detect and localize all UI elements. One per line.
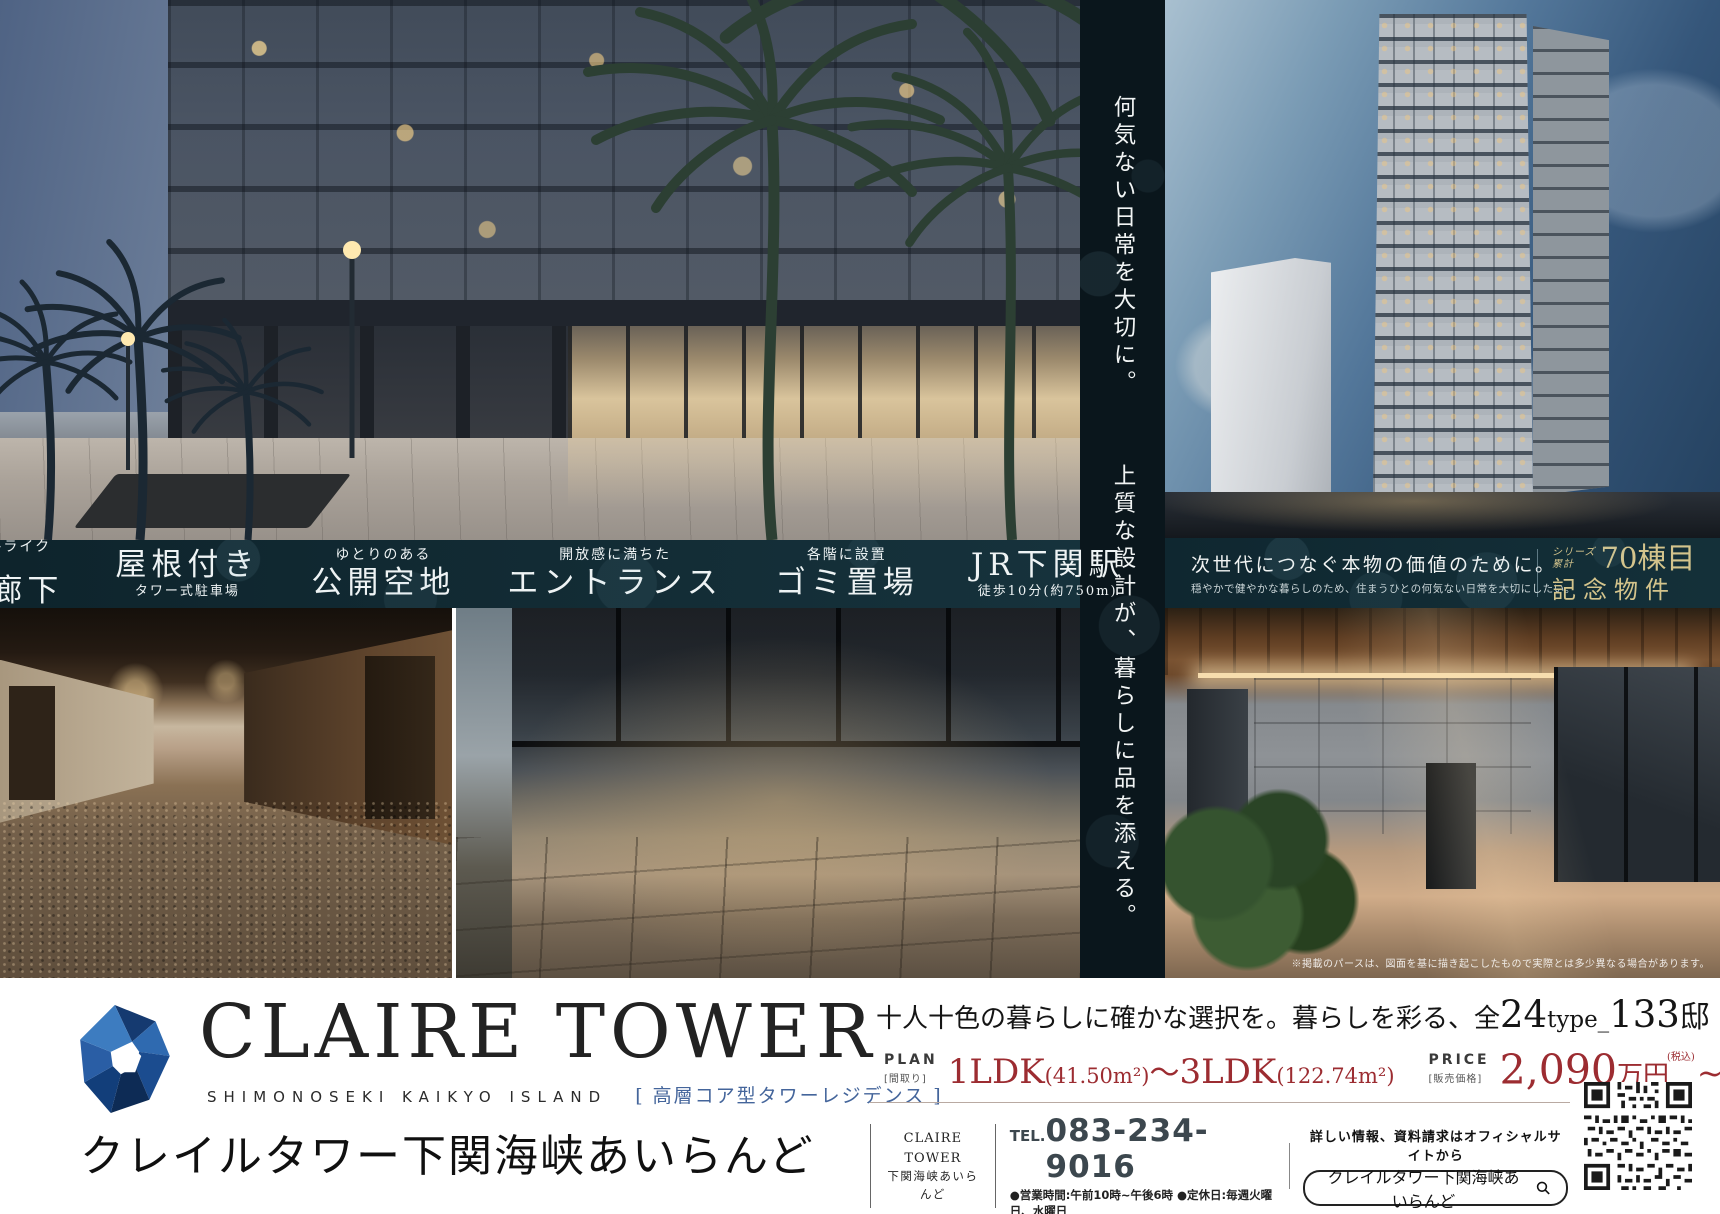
feature-main: JR下関駅 [971, 548, 1125, 582]
series-badge: シリーズ 累計 70棟目 記念物件 [1552, 544, 1695, 602]
feature-main: 公開空地 [311, 566, 455, 600]
caption-divider [1537, 549, 1538, 597]
feature-garbage-room: 各階に設置 ゴミ置場 [749, 548, 945, 600]
series-subtitle: 記念物件 [1552, 578, 1695, 602]
series-line1: シリーズ [1552, 548, 1596, 558]
palm-trees-silhouette [0, 0, 1080, 540]
corridor-carpet [0, 800, 452, 978]
headline-type-count: 24 [1500, 993, 1547, 1036]
plan-label-en: PLAN [884, 1052, 938, 1068]
offer-headline: 十人十色の暮らしに確かな選択を。暮らしを彩る、全24type_133邸 [876, 992, 1568, 1036]
photo-entrance-exterior [0, 0, 1080, 540]
series-number: 70棟目 [1601, 544, 1696, 573]
price-min-tax-note: (税込) [1667, 1052, 1695, 1063]
lobby-floor-sheen [1165, 608, 1720, 978]
feature-main: 内廊下 [0, 574, 63, 608]
telephone-line: TEL. 083-234-9016 [1010, 1113, 1275, 1185]
vertical-tagline-1: 何気ない日常を大切に。 [1110, 95, 1136, 398]
lamp-posts [121, 241, 361, 470]
series-line2: 累計 [1552, 560, 1596, 570]
tower-front-face [1373, 14, 1533, 494]
feature-open-space: ゆとりのある 公開空地 [285, 548, 481, 600]
website-group: 詳しい情報、資料請求はオフィシャルサイトから クレイルタワー下関海峡あいらんど [1303, 1126, 1568, 1206]
telephone-group: TEL. 083-234-9016 ●営業時間:午前10時~午後6時 ●定休日:… [1010, 1113, 1275, 1214]
info-footer: CLAIRE TOWER SHIMONOSEKI KAIKYO ISLAND [… [0, 978, 1720, 1214]
tower-base [1165, 492, 1720, 538]
plan-price-row: PLAN [間取り] 1LDK(41.50m²)〜3LDK(122.74m²) … [884, 1048, 1568, 1092]
business-hours: ●営業時間:午前10時~午後6時 ●定休日:毎週火曜日、水曜日 [1010, 1187, 1275, 1214]
price-range-tilde: ~ [1697, 1054, 1720, 1092]
website-note: 詳しい情報、資料請求はオフィシャルサイトから [1303, 1126, 1568, 1164]
price-label: PRICE [販売価格] [1429, 1052, 1490, 1092]
contact-brand-box: CLAIRE TOWER 下関海峡あいらんど [870, 1124, 996, 1208]
contact-row: CLAIRE TOWER 下関海峡あいらんど TEL. 083-234-9016… [870, 1113, 1568, 1214]
tel-prefix: TEL. [1010, 1127, 1046, 1145]
tower-side-face [1533, 26, 1609, 496]
advert-poster: 何気ない日常を大切に。 上質な設計が、暮らしに品を添える。 ホテルライクな 内廊… [0, 0, 1720, 1214]
white-lowrise-building [1211, 258, 1331, 498]
tower-caption-text: 次世代につなぐ本物の価値のために。 穏やかで健やかな暮らしのため、住まうひとの何… [1191, 550, 1531, 596]
feature-main: 屋根付き [115, 548, 259, 582]
separator-rule [870, 1102, 1570, 1103]
plan-label-jp: [間取り] [884, 1070, 938, 1085]
tower-caption-band: 次世代につなぐ本物の価値のために。 穏やかで健やかな暮らしのため、住まうひとの何… [1165, 538, 1720, 608]
photo-inner-corridor [0, 608, 452, 978]
phone-number: 083-234-9016 [1046, 1113, 1275, 1185]
feature-sub: 徒歩10分(約750m) [978, 585, 1118, 599]
plan-label: PLAN [間取り] [884, 1052, 938, 1092]
feature-sub: 開放感に満ちた [559, 548, 671, 563]
series-badge-prefix: シリーズ 累計 [1552, 548, 1596, 570]
site-search-pill[interactable]: クレイルタワー下関海峡あいらんど [1303, 1170, 1568, 1206]
contact-divider [1289, 1143, 1290, 1189]
brand-block: CLAIRE TOWER SHIMONOSEKI KAIKYO ISLAND [… [75, 995, 943, 1115]
contact-brand-line2: 下関海峡あいらんど [883, 1168, 983, 1203]
brand-gem-logo [75, 1003, 179, 1115]
photo-lobby: ※掲載のパースは、図面を基に描き起こしたもので実際とは多少異なる場合があります。 [1165, 608, 1720, 978]
feature-sub: タワー式駐車場 [135, 585, 240, 599]
headline-text: 十人十色の暮らしに確かな選択を。暮らしを彩る、全 [876, 1004, 1500, 1034]
plan-range-tilde: 〜 [1149, 1056, 1179, 1091]
caption-subline: 穏やかで健やかな暮らしのため、住まうひとの何気ない日常を大切にしたい。 [1191, 581, 1531, 596]
feature-main: エントランス [507, 566, 722, 600]
plan-max: 3LDK [1179, 1052, 1276, 1092]
plan-value: 1LDK(41.50m²)〜3LDK(122.74m²) [948, 1048, 1395, 1092]
series-badge-row: シリーズ 累計 70棟目 [1552, 544, 1695, 573]
feature-inner-corridor: ホテルライクな 内廊下 [0, 540, 89, 608]
feature-band: ホテルライクな 内廊下 屋根付き タワー式駐車場 ゆとりのある 公開空地 開放感… [0, 540, 1080, 608]
plan-max-area: (122.74m²) [1276, 1064, 1394, 1088]
photo-entrance-hall [456, 608, 1080, 978]
search-keyword: クレイルタワー下関海峡あいらんど [1321, 1164, 1525, 1212]
headline-unit-suffix: 邸 [1680, 1000, 1710, 1035]
render-disclaimer: ※掲載のパースは、図面を基に描き起こしたもので実際とは多少異なる場合があります。 [1292, 955, 1711, 970]
headline-unit-count: 133 [1609, 993, 1680, 1036]
contact-brand-line1: CLAIRE TOWER [883, 1129, 983, 1168]
feature-entrance: 開放感に満ちた エントランス [481, 548, 748, 600]
feature-main: ゴミ置場 [775, 566, 919, 600]
feature-sub: ホテルライクな [0, 540, 63, 571]
vertical-tagline: 何気ない日常を大切に。 上質な設計が、暮らしに品を添える。 [1080, 95, 1165, 931]
price-label-en: PRICE [1429, 1052, 1490, 1068]
vertical-tagline-2: 上質な設計が、暮らしに品を添える。 [1110, 464, 1136, 932]
feature-sub: 各階に設置 [807, 548, 887, 563]
feature-covered-parking: 屋根付き タワー式駐車場 [89, 548, 285, 599]
brand-name-japanese: クレイルタワー下関海峡あいらんど [80, 1120, 815, 1184]
photo-tower-exterior [1165, 0, 1720, 538]
feature-jr-station: JR下関駅 徒歩10分(約750m) [945, 548, 1151, 599]
offer-block: 十人十色の暮らしに確かな選択を。暮らしを彩る、全24type_133邸 PLAN… [818, 992, 1568, 1214]
qr-code[interactable] [1584, 1082, 1692, 1190]
brand-english-subtitle: SHIMONOSEKI KAIKYO ISLAND [207, 1088, 607, 1106]
headline-type-label: type_ [1547, 1007, 1609, 1033]
caption-headline: 次世代につなぐ本物の価値のために。 [1191, 550, 1531, 577]
feature-sub: ゆとりのある [335, 548, 431, 563]
plan-min-area: (41.50m²) [1045, 1064, 1150, 1088]
plan-min: 1LDK [948, 1052, 1045, 1092]
price-label-jp: [販売価格] [1429, 1070, 1490, 1085]
entrance-marble-floor [456, 837, 1080, 978]
search-icon [1536, 1179, 1550, 1197]
vertical-copy-strip: 何気ない日常を大切に。 上質な設計が、暮らしに品を添える。 [1080, 0, 1165, 978]
